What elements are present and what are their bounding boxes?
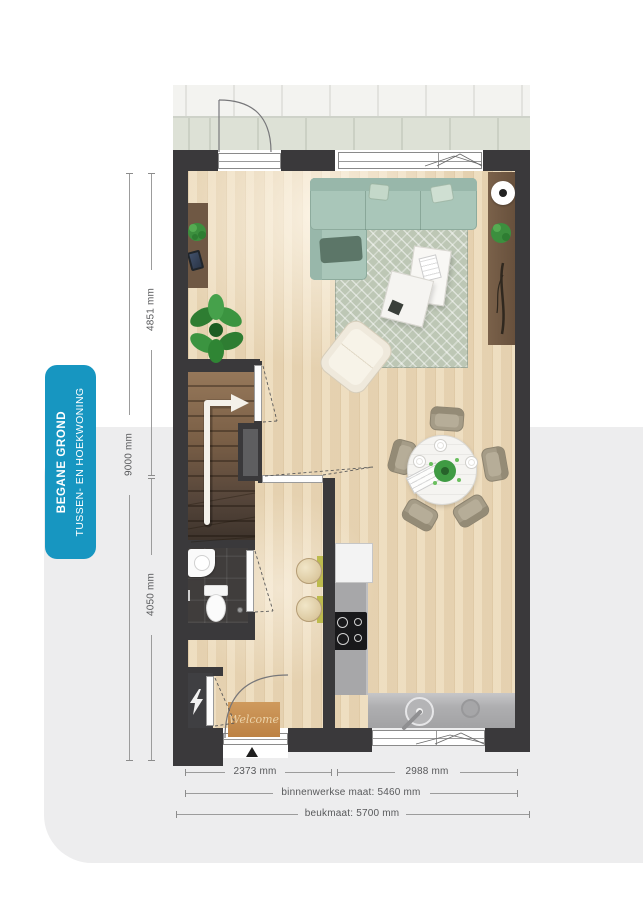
wall-hall-kitchen <box>323 478 335 728</box>
terrace-tiles-lower <box>173 118 530 150</box>
dim-line <box>151 350 152 475</box>
floor-name: BEGANE GROND <box>53 388 71 537</box>
dim-line <box>151 478 152 555</box>
wall-meter-right <box>213 667 223 676</box>
door-hall-living <box>262 475 323 483</box>
sofa-throw-pillow <box>319 236 363 264</box>
toilet-bowl <box>206 594 226 622</box>
wall-stairs-top <box>177 359 260 372</box>
welcome-mat: Welcome <box>228 702 280 737</box>
wall-toilet-top <box>175 540 255 548</box>
dim-line <box>129 495 130 760</box>
back-door-frame <box>218 153 281 169</box>
house-type: TUSSEN- EN HOEKWONING <box>71 388 87 537</box>
dim-line <box>129 173 130 415</box>
dim-label-4851: 4851 mm <box>146 270 157 350</box>
floor-plan: Welcome <box>173 85 530 766</box>
speaker <box>491 181 515 205</box>
wall-left <box>173 150 188 752</box>
kitchen-sink <box>405 697 434 726</box>
dim-label-binnenwerks: binnenwerkse maat: 5460 mm <box>271 787 431 798</box>
wall-toilet-right <box>248 540 255 550</box>
wall-toilet-bottom <box>175 623 255 640</box>
wall-bottom-left <box>173 728 223 766</box>
dim-label-4050: 4050 mm <box>146 555 157 635</box>
entrance-triangle-icon <box>246 747 258 757</box>
stair-cabinet <box>238 423 262 481</box>
wall-top <box>281 150 335 171</box>
dim-label-9000: 9000 mm <box>124 415 135 495</box>
dim-label-beukmaat: beukmaat: 5700 mm <box>292 808 412 819</box>
plate <box>413 455 426 468</box>
floorplan-page: BEGANE GROND TUSSEN- EN HOEKWONING <box>0 0 643 902</box>
lightning-bolt-icon <box>190 689 204 715</box>
dim-line <box>151 635 152 760</box>
washbasin <box>188 549 215 577</box>
plate <box>434 439 447 452</box>
door-stairs <box>254 365 262 422</box>
wall-toilet-right <box>248 612 255 623</box>
cooktop <box>333 612 367 650</box>
dim-label-2988: 2988 mm <box>387 766 467 777</box>
floor-drain <box>237 607 243 613</box>
bar-stool <box>296 596 322 622</box>
window-top <box>338 152 482 169</box>
side-table <box>188 203 208 288</box>
wall-right <box>515 150 530 752</box>
fridge <box>335 543 373 583</box>
dim-label-2373: 2373 mm <box>215 766 295 777</box>
welcome-text: Welcome <box>229 713 279 726</box>
window-bottom <box>372 730 485 746</box>
tray <box>388 300 404 316</box>
sink-drainer <box>461 699 480 718</box>
door-meter-cupboard <box>206 676 214 726</box>
floor-label-tag: BEGANE GROND TUSSEN- EN HOEKWONING <box>45 365 96 559</box>
plate <box>465 456 478 469</box>
terrace-tiles-upper <box>173 85 530 118</box>
kitchen-counter-bottom <box>368 693 515 728</box>
wall-bottom-right <box>485 728 530 752</box>
dim-line <box>151 173 152 270</box>
door-toilet <box>246 550 254 612</box>
dining-chair <box>429 406 465 432</box>
bar-stool <box>296 558 322 584</box>
floor-label-text: BEGANE GROND TUSSEN- EN HOEKWONING <box>53 388 87 537</box>
wall-bottom <box>288 728 372 752</box>
sofa-pillow <box>368 183 390 201</box>
